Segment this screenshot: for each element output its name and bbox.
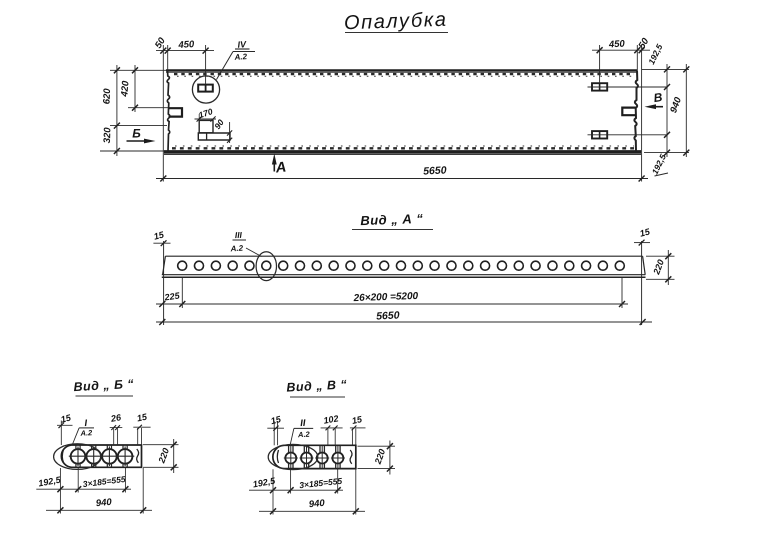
svg-text:940: 940 bbox=[668, 95, 684, 114]
svg-text:26×200 =5200: 26×200 =5200 bbox=[352, 291, 418, 304]
svg-text:15: 15 bbox=[270, 414, 283, 426]
svg-text:220: 220 bbox=[651, 258, 666, 276]
svg-text:3×185=555: 3×185=555 bbox=[299, 476, 343, 490]
svg-text:940: 940 bbox=[95, 497, 112, 509]
svg-text:15: 15 bbox=[153, 229, 166, 241]
svg-text:450: 450 bbox=[608, 38, 626, 50]
svg-text:102: 102 bbox=[323, 413, 340, 425]
svg-text:170: 170 bbox=[197, 106, 214, 120]
svg-text:192,5: 192,5 bbox=[38, 474, 63, 488]
svg-text:220: 220 bbox=[156, 447, 171, 465]
svg-text:IV: IV bbox=[237, 39, 247, 50]
svg-text:II: II bbox=[300, 418, 306, 429]
svg-text:620: 620 bbox=[102, 88, 114, 105]
svg-text:220: 220 bbox=[372, 448, 387, 466]
svg-text:15: 15 bbox=[136, 411, 149, 423]
svg-text:3×185=555: 3×185=555 bbox=[82, 474, 126, 489]
svg-text:940: 940 bbox=[308, 498, 325, 510]
svg-text:Вид „ В “: Вид „ В “ bbox=[286, 377, 348, 394]
svg-text:А.2: А.2 bbox=[233, 52, 248, 62]
svg-text:225: 225 bbox=[163, 290, 181, 302]
svg-text:I: I bbox=[84, 418, 88, 429]
svg-text:Б: Б bbox=[132, 127, 141, 141]
svg-text:192,5: 192,5 bbox=[650, 152, 668, 176]
svg-text:15: 15 bbox=[351, 414, 364, 426]
svg-text:Вид „ А “: Вид „ А “ bbox=[360, 211, 424, 228]
svg-text:320: 320 bbox=[102, 127, 114, 144]
svg-text:15: 15 bbox=[639, 226, 652, 238]
svg-text:420: 420 bbox=[119, 80, 131, 98]
svg-text:5650: 5650 bbox=[423, 164, 447, 177]
svg-text:А.2: А.2 bbox=[297, 430, 311, 440]
svg-text:А: А bbox=[274, 160, 287, 177]
svg-text:Опалубка: Опалубка bbox=[344, 9, 448, 35]
svg-text:А.2: А.2 bbox=[79, 428, 93, 438]
svg-text:15: 15 bbox=[60, 412, 73, 424]
svg-text:В: В bbox=[653, 90, 664, 105]
svg-text:Вид „ Б “: Вид „ Б “ bbox=[73, 377, 135, 394]
svg-text:5650: 5650 bbox=[376, 309, 400, 322]
svg-text:III: III bbox=[235, 230, 243, 240]
svg-text:450: 450 bbox=[177, 39, 195, 51]
svg-text:26: 26 bbox=[109, 412, 123, 424]
svg-text:А.2: А.2 bbox=[229, 244, 243, 254]
